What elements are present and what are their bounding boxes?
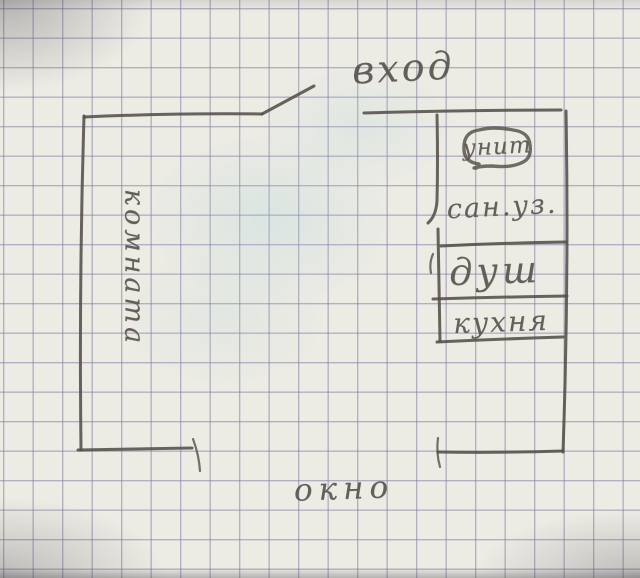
label-toilet: унит (462, 132, 532, 162)
label-kitchen: кухня (453, 304, 550, 340)
wall-sanuz-left (428, 115, 438, 223)
label-room: комната (119, 189, 150, 347)
wall-top-right (364, 110, 561, 113)
wall-left (80, 116, 84, 450)
wall-shower-top (441, 242, 566, 246)
wall-right (563, 111, 567, 452)
wall-bottom-left (78, 448, 192, 450)
wall-bottom-right (438, 451, 563, 452)
floor-plan-sketch: вход комната унит сан.уз. душ кухня окно (0, 0, 640, 578)
door-leaf-line (262, 86, 314, 114)
label-san-unit: сан.уз. (446, 189, 558, 226)
wall-shower-left (438, 229, 440, 341)
wall-top-left (84, 114, 262, 117)
label-entrance: вход (351, 43, 456, 92)
window-mark-left (193, 439, 200, 471)
label-window: окно (293, 469, 394, 508)
door-mark-shower (430, 254, 433, 273)
wall-shower-kitchen-divider (433, 296, 567, 299)
label-shower: душ (448, 248, 541, 294)
